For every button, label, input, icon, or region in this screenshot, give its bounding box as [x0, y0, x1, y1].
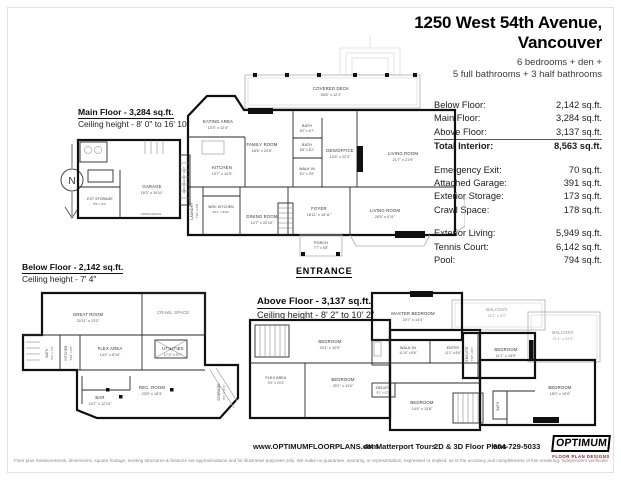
above-floor-plan: MASTER BEDROOM 20'7" x 14'4" BALCONY 22'… [245, 288, 617, 440]
room-dims: 21'1" x 31'9" [553, 337, 574, 341]
room-dims: 15'0" x 19'0" [550, 392, 571, 396]
room-dims: 7'10" x 8'1" [470, 347, 474, 362]
room-dims: 8'2" x 6'7" [300, 129, 315, 133]
stat-value: 5,949 sq.ft. [556, 227, 602, 240]
room-label: MASTER BEDROOM [391, 311, 435, 316]
stat-value: 391 sq.ft. [564, 177, 602, 190]
room-dims: 5'5" x 8'1" [93, 202, 107, 206]
room-dims: 17'2" x 9'7" [164, 353, 183, 357]
right-block-walls [480, 360, 595, 425]
summary-line2: 5 full bathrooms + 3 half bathrooms [453, 69, 602, 81]
stat-value: 8,563 sq.ft. [554, 140, 602, 153]
room-label: GREAT ROOM [73, 312, 104, 317]
room-label: BEDROOM [318, 339, 342, 344]
stat-value: 178 sq.ft. [564, 204, 602, 217]
room-label: EXT STORAGE [87, 197, 113, 201]
room-label: FLEX AREA [98, 346, 123, 351]
below-floor-plan: GREAT ROOM 20'11" x 13'2" CRAWL SPACE FL… [20, 258, 250, 430]
room-dims: 15'7" x 14'9" [212, 172, 233, 176]
room-label: BATH [302, 124, 312, 128]
disclaimer-text: Floor plan measurements, dimensions, squ… [14, 458, 608, 463]
room-label: LAUNDRY [190, 202, 194, 220]
room-dims: 13'4" x 22'2" [330, 155, 351, 159]
room-label: BEDROOM [331, 377, 355, 382]
room-label: FOYER [311, 206, 327, 211]
room-label: LIVING ROOM [370, 208, 401, 213]
room-label: ENTRY [447, 346, 460, 350]
room-dims: 13'3" x 12'4" [208, 126, 229, 130]
porch: PORCH 7'7" x 5'8" [300, 235, 342, 256]
garage-wing-walls [78, 140, 180, 218]
room-dims: 7'7" x 5'8" [314, 246, 329, 250]
room-label: GARAGE [142, 184, 161, 189]
room-dims: 14'2" x 8'10" [100, 353, 121, 357]
room-label: BAR [95, 395, 104, 400]
stat-value: 6,142 sq.ft. [556, 241, 602, 254]
room-dims: 22'1" x 9'2" [488, 314, 507, 318]
fireplace [248, 108, 273, 114]
stat-value: 3,137 sq.ft. [556, 126, 602, 139]
room-dims: 20'11" x 13'2" [77, 319, 100, 323]
fireplace [395, 231, 425, 238]
footer-tours: 4K Matterport Tours [364, 442, 436, 451]
room-label: ENSUITE [465, 347, 469, 362]
room-label: EATING AREA [203, 119, 233, 124]
footer-phone: 604-729-5033 [493, 442, 540, 451]
room-dims: 18'2" x 19'11" [141, 191, 164, 195]
room-dims: 26'5" x 9'11" [375, 215, 396, 219]
room-label: BEDROOM [548, 385, 572, 390]
room-label: EMERGENCY EXIT [182, 166, 186, 193]
room-dims: 11'1" x 8'6" [445, 351, 462, 355]
room-label: KITCHEN [64, 345, 68, 361]
optimum-logo: OPTIMUM FLOOR PLAN DESIGNS [552, 435, 610, 459]
room-dims: 23'5" x 18'3" [142, 392, 163, 396]
room-dims: 14'7" x 22'10" [251, 221, 275, 225]
stat-value: 794 sq.ft. [564, 254, 602, 267]
room-dims: 20'1" x 10'9" [320, 346, 341, 350]
left-wing-walls [250, 320, 390, 418]
room-label: STORAGE [217, 383, 221, 401]
room-label: BEDROOM [494, 347, 518, 352]
room-label: DEN/OFFICE [326, 148, 354, 153]
fireplace [533, 417, 559, 423]
room-dims: 11'10" x 8'6" [399, 351, 418, 355]
room-label: WOK KITCHEN [208, 205, 234, 209]
property-summary: 6 bedrooms + den + 5 full bathrooms + 3 … [453, 57, 602, 81]
room-dims: 25'1" x 11'0" [333, 384, 354, 388]
middle-block-walls [390, 330, 480, 430]
room-label: BATH [496, 401, 500, 410]
room-dims: 5'10" x 9'5" [69, 346, 73, 361]
room-dims: 8'1" x 10'1" [222, 384, 226, 399]
room-dims: 20'7" x 14'4" [403, 318, 424, 322]
room-label: PORCH [314, 241, 328, 245]
room-label: DINING ROOM [246, 214, 278, 219]
floor-plan-sheet: 1250 West 54th Avenue, Vancouver 6 bedro… [0, 0, 621, 480]
summary-line1: 6 bedrooms + den + [453, 57, 602, 69]
room-label: CRAWL SPACE [157, 310, 189, 315]
master-block-walls [372, 293, 462, 340]
room-dims: 55'8" x 12'1" [321, 93, 342, 97]
stairs [278, 203, 293, 235]
room-dims: 14'7" x 12'10" [89, 402, 113, 406]
deck-steps [340, 36, 400, 75]
garage-wing-interior [78, 140, 190, 218]
room-label: UTILITIES [162, 346, 183, 351]
room-dims: 8'2" x 3'9" [300, 172, 315, 176]
room-label: COVERED DECK [313, 86, 349, 91]
room-label: ENSUITE [376, 386, 391, 390]
footer-website: www.OPTIMUMFLOORPLANS.com [253, 442, 378, 451]
stat-value: 3,284 sq.ft. [556, 112, 602, 125]
room-dims: 5'8" x 5'2" [300, 148, 315, 152]
main-floor-plan: COVERED DECK 55'8" x 12'1" PORCH 7'7" x … [55, 28, 465, 268]
room-label: WALK IN [299, 167, 315, 171]
room-dims: 18'5" x 24'5" [252, 149, 273, 153]
room-dims: 11'1" x 16'9" [496, 354, 517, 358]
bay-window-right [455, 193, 465, 233]
room-label: FAMILY ROOM [246, 142, 277, 147]
stat-value: 70 sq.ft. [569, 164, 602, 177]
room-label: FLEX AREA [266, 376, 287, 380]
built-in [410, 291, 433, 297]
room-label: CRAWLSPACE [141, 212, 162, 216]
room-dims: 14'4" x 13'8" [412, 407, 433, 411]
logo-title: OPTIMUM [551, 435, 611, 452]
stat-value: 2,142 sq.ft. [556, 99, 602, 112]
room-dims: 21'7" x 21'9" [393, 158, 414, 162]
built-in [357, 146, 363, 172]
room-label: BATH [302, 143, 312, 147]
room-label: LIVING ROOM [388, 151, 419, 156]
room-dims: 18'11" x 16'11" [307, 213, 332, 217]
room-label: KITCHEN [212, 165, 232, 170]
covered-deck: COVERED DECK 55'8" x 12'1" [245, 73, 420, 108]
room-dims: 8'1" x 6'2" [376, 391, 389, 395]
room-label: BEDROOM [410, 400, 434, 405]
room-label: BALCONY [486, 307, 508, 312]
stat-value: 173 sq.ft. [564, 190, 602, 203]
built-in [529, 340, 534, 360]
room-label: WALK-IN [400, 346, 416, 350]
room-dims: 9'2" x 19'4" [268, 381, 285, 385]
room-dims: 7'10" x 6'8" [195, 203, 199, 218]
room-label: BATH [45, 348, 49, 357]
below-outer-walls [23, 293, 238, 418]
room-label: BALCONY [552, 330, 574, 335]
room-dims: 8'11" x 6'10" [213, 210, 230, 214]
room-dims: 5'2" x 7'4" [50, 346, 54, 359]
room-label: REC. ROOM [139, 385, 165, 390]
